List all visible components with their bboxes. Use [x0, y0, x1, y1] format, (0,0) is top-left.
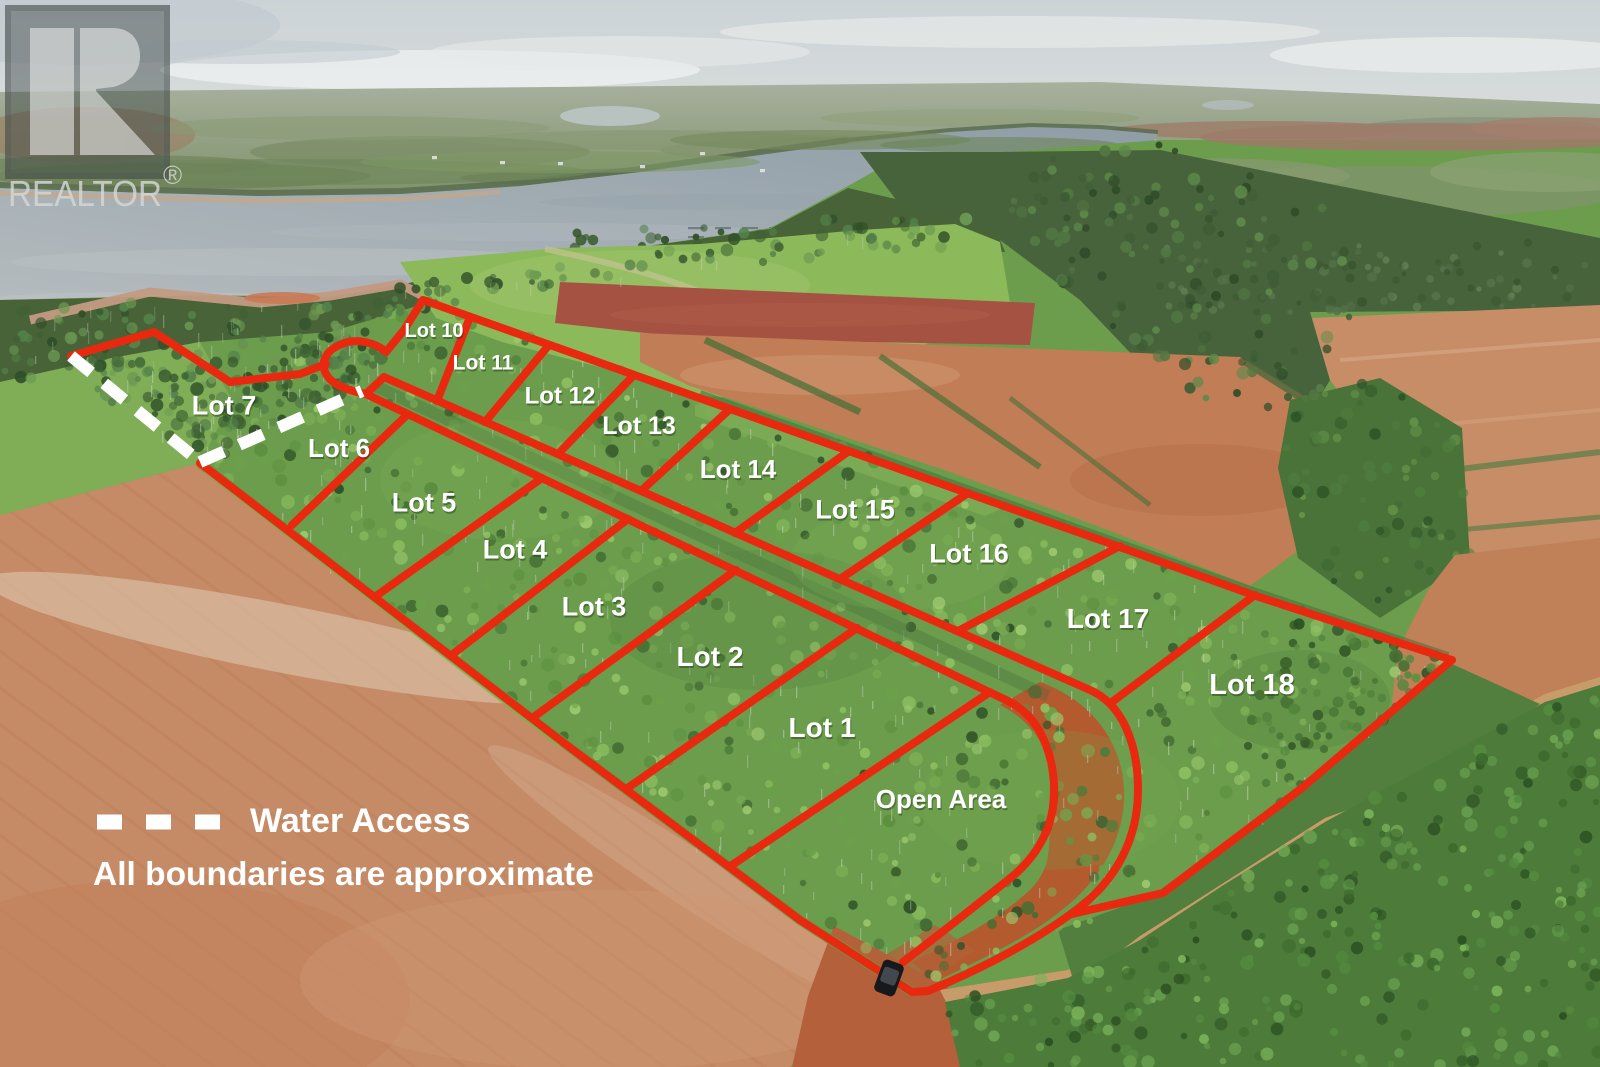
svg-text:Lot 13: Lot 13 — [602, 412, 676, 440]
svg-text:Lot 16: Lot 16 — [929, 538, 1009, 568]
svg-text:Lot 2: Lot 2 — [677, 641, 744, 672]
svg-text:Lot 6: Lot 6 — [308, 433, 370, 463]
svg-text:Lot 18: Lot 18 — [1209, 669, 1294, 701]
svg-text:Lot 3: Lot 3 — [562, 591, 627, 621]
svg-text:Lot 1: Lot 1 — [789, 712, 856, 743]
svg-text:Lot 12: Lot 12 — [525, 382, 596, 409]
svg-text:Lot 11: Lot 11 — [453, 351, 514, 374]
svg-text:Lot 4: Lot 4 — [483, 534, 548, 564]
svg-text:Lot 5: Lot 5 — [392, 487, 457, 517]
svg-text:Lot 17: Lot 17 — [1067, 603, 1149, 634]
svg-text:®: ® — [163, 160, 182, 190]
svg-text:Lot 7: Lot 7 — [192, 390, 257, 420]
svg-text:Water Access: Water Access — [250, 802, 471, 840]
svg-text:All boundaries are approximate: All boundaries are approximate — [93, 856, 594, 893]
svg-text:Lot 14: Lot 14 — [700, 454, 777, 484]
svg-text:Lot 10: Lot 10 — [405, 320, 464, 342]
svg-text:REALTOR: REALTOR — [8, 173, 162, 214]
svg-text:Open Area: Open Area — [876, 784, 1007, 814]
svg-text:Lot 15: Lot 15 — [815, 494, 895, 524]
